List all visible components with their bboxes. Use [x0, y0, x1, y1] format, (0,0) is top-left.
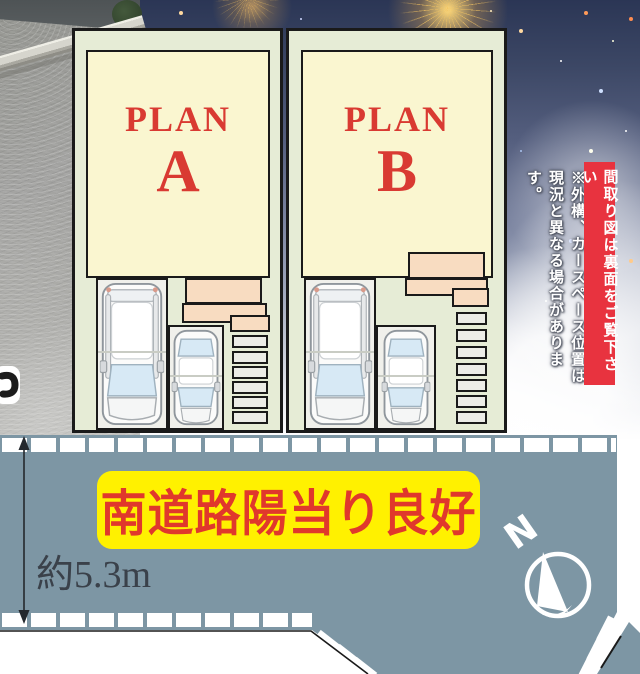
plan-letter: A [86, 141, 270, 201]
floorplan-flip-notice-banner: 間取り図は裏面をご覧下さい [584, 162, 615, 385]
plan-word: PLAN [301, 101, 493, 137]
road-width-label: 約5.3m [36, 543, 151, 598]
approach-step [456, 379, 487, 392]
entrance-porch-step [230, 315, 270, 332]
plan-word: PLAN [86, 101, 270, 137]
curb-edge-line [0, 631, 368, 674]
approach-step [456, 312, 487, 325]
parking-bay-small [376, 325, 436, 430]
entrance-porch-step [185, 278, 262, 304]
plan-a-label: PLAN A [86, 101, 270, 201]
approach-step [232, 335, 268, 348]
approach-step [232, 396, 268, 409]
parking-bay-small [168, 325, 224, 430]
approach-step [456, 363, 487, 376]
disclaimer-line-2: 現況と異なる場合があります。 [525, 170, 564, 368]
approach-step [456, 346, 487, 359]
road-marking [0, 366, 22, 406]
car-large-icon [307, 281, 373, 427]
plot-plan-a: PLAN A [72, 28, 283, 433]
parking-bay-large [304, 278, 376, 430]
plot-plan-b: PLAN B [286, 28, 507, 433]
approach-step [232, 411, 268, 424]
flip-notice-text: 間取り図は裏面をご覧下さい [579, 162, 621, 385]
headline-text: 南道路陽当り良好 [101, 474, 477, 545]
real-estate-site-plan: N PLAN A PLAN B [0, 0, 640, 674]
approach-step [232, 366, 268, 379]
south-road-headline-banner: 南道路陽当り良好 [97, 471, 480, 549]
car-small-icon [379, 328, 433, 427]
curb-hatch-bottom [0, 613, 312, 627]
plan-b-label: PLAN B [301, 101, 493, 201]
firework-burst-small-icon [215, 0, 279, 30]
approach-step [456, 329, 487, 342]
parking-bay-large [96, 278, 168, 430]
entrance-porch-step [408, 252, 485, 279]
car-small-icon [171, 328, 221, 427]
entrance-porch-step [452, 288, 489, 307]
plan-letter: B [301, 141, 493, 201]
curb-hatch-top [2, 438, 616, 452]
approach-step [232, 381, 268, 394]
approach-step [456, 395, 487, 408]
car-large-icon [99, 281, 165, 427]
approach-step [456, 411, 487, 424]
approach-step [232, 351, 268, 364]
